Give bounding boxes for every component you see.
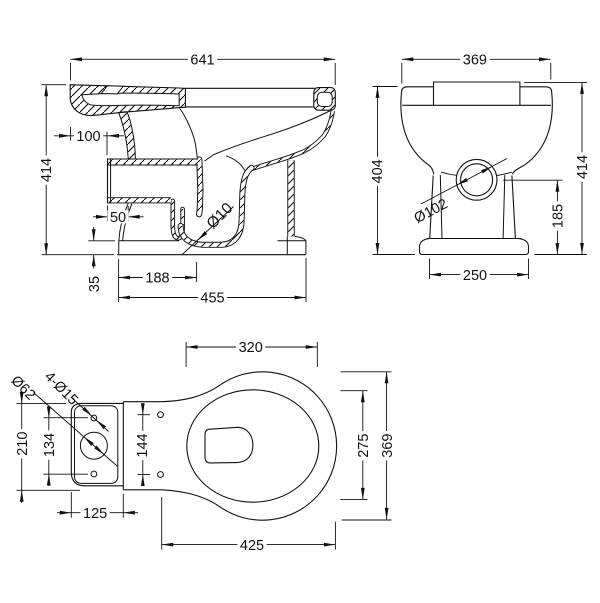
svg-text:320: 320 xyxy=(239,340,263,356)
svg-text:35: 35 xyxy=(87,276,103,292)
svg-text:188: 188 xyxy=(145,271,169,287)
svg-text:134: 134 xyxy=(42,433,58,457)
svg-text:185: 185 xyxy=(551,204,567,228)
svg-text:369: 369 xyxy=(380,434,396,458)
svg-text:250: 250 xyxy=(463,268,487,284)
svg-text:414: 414 xyxy=(39,158,55,182)
svg-text:100: 100 xyxy=(76,129,100,145)
svg-text:369: 369 xyxy=(463,53,487,69)
svg-text:425: 425 xyxy=(240,538,264,554)
svg-text:50: 50 xyxy=(110,210,126,226)
svg-text:455: 455 xyxy=(200,291,224,307)
svg-text:144: 144 xyxy=(135,433,151,457)
svg-text:275: 275 xyxy=(356,434,372,458)
svg-text:210: 210 xyxy=(15,432,31,456)
svg-text:404: 404 xyxy=(370,159,386,183)
svg-text:641: 641 xyxy=(190,53,214,69)
svg-text:414: 414 xyxy=(575,155,591,179)
svg-text:125: 125 xyxy=(83,506,107,522)
